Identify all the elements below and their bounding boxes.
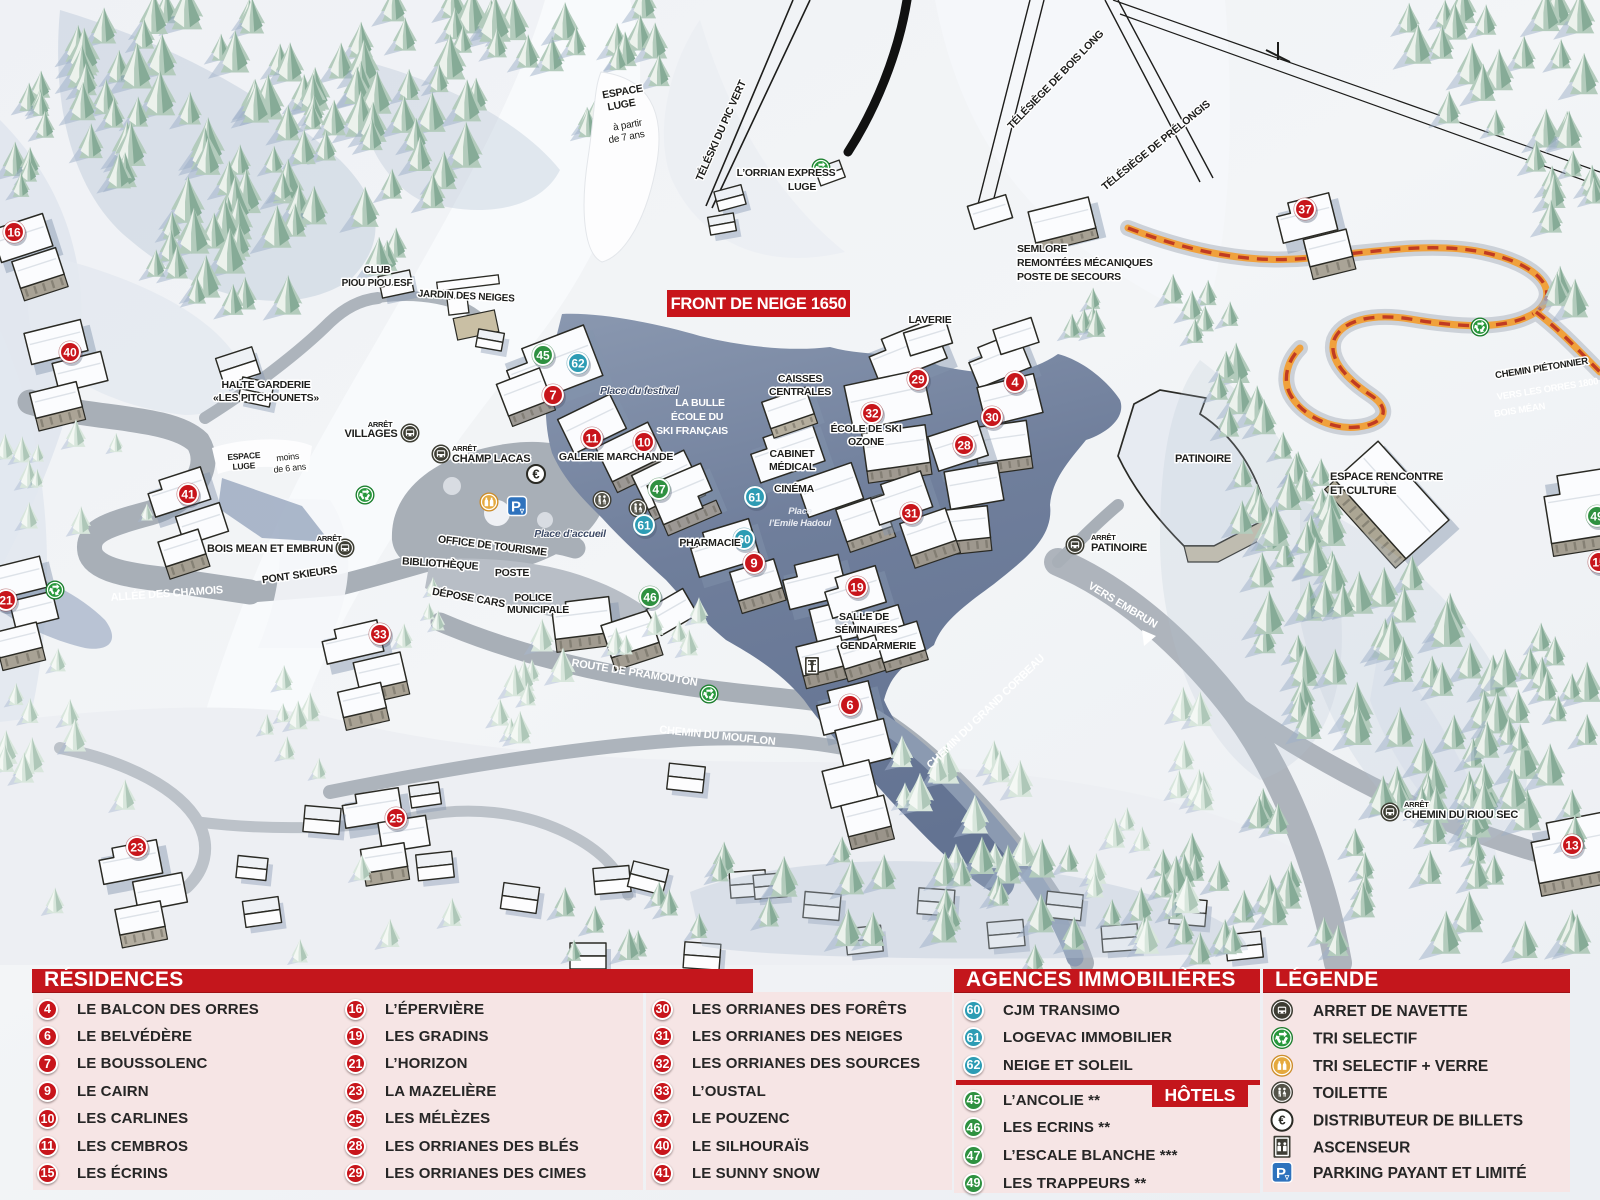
svg-text:CAISSES: CAISSES	[778, 373, 823, 385]
svg-text:VILLAGES: VILLAGES	[344, 428, 397, 440]
svg-text:40: 40	[63, 345, 77, 359]
svg-text:Place d’accueil: Place d’accueil	[534, 528, 607, 540]
svg-text:4: 4	[1011, 374, 1019, 389]
svg-text:MUNICIPALE: MUNICIPALE	[507, 604, 569, 616]
svg-text:REMONTÉES MÉCANIQUES: REMONTÉES MÉCANIQUES	[1017, 256, 1153, 269]
svg-text:LUGE: LUGE	[232, 460, 256, 472]
svg-text:41: 41	[181, 487, 195, 501]
svg-text:Place: Place	[788, 506, 813, 517]
svg-text:CABINET: CABINET	[770, 448, 816, 460]
svg-text:P: P	[511, 499, 521, 516]
svg-text:LUGE: LUGE	[788, 181, 816, 193]
svg-text:PIOU PIOU ESF: PIOU PIOU ESF	[342, 278, 413, 289]
svg-text:62: 62	[571, 356, 585, 370]
svg-text:10: 10	[637, 435, 651, 449]
svg-text:€: €	[532, 467, 539, 482]
svg-text:CHAMP LACAS: CHAMP LACAS	[452, 453, 530, 465]
svg-text:11: 11	[586, 431, 599, 445]
svg-text:32: 32	[865, 406, 879, 420]
svg-text:19: 19	[850, 580, 864, 594]
svg-text:LAVERIE: LAVERIE	[909, 314, 952, 326]
svg-text:ÉCOLE DU: ÉCOLE DU	[671, 410, 723, 423]
svg-text:SEMLORE: SEMLORE	[1017, 243, 1067, 255]
svg-text:SKI FRANÇAIS: SKI FRANÇAIS	[656, 425, 728, 437]
svg-text:31: 31	[904, 506, 918, 520]
svg-text:61: 61	[637, 518, 651, 532]
svg-text:16: 16	[7, 225, 21, 239]
svg-text:BOIS MEAN ET EMBRUN: BOIS MEAN ET EMBRUN	[207, 543, 333, 555]
svg-text:CENTRALES: CENTRALES	[769, 386, 831, 398]
svg-text:30: 30	[985, 410, 999, 424]
svg-text:«LES PITCHOUNETS»: «LES PITCHOUNETS»	[213, 392, 319, 404]
svg-text:l’Emile Hadoul: l’Emile Hadoul	[769, 518, 832, 529]
svg-text:47: 47	[652, 482, 666, 496]
svg-text:21: 21	[0, 593, 13, 607]
svg-text:29: 29	[911, 372, 925, 386]
svg-text:GENDARMERIE: GENDARMERIE	[840, 640, 916, 652]
svg-text:FRONT DE NEIGE 1650: FRONT DE NEIGE 1650	[671, 295, 847, 313]
svg-text:6: 6	[846, 697, 853, 712]
svg-text:49: 49	[1590, 509, 1600, 523]
svg-text:25: 25	[389, 811, 403, 825]
svg-text:SALLE DE: SALLE DE	[839, 611, 889, 623]
svg-text:POSTE DE SECOURS: POSTE DE SECOURS	[1017, 271, 1121, 283]
svg-text:13: 13	[1565, 838, 1579, 852]
svg-text:MÉDICAL: MÉDICAL	[769, 460, 816, 473]
svg-text:9: 9	[750, 555, 757, 570]
svg-text:ARRÊT: ARRÊT	[317, 534, 342, 543]
svg-text:CHEMIN DU RIOU SEC: CHEMIN DU RIOU SEC	[1404, 809, 1518, 821]
svg-text:7: 7	[549, 387, 556, 402]
svg-text:CLUB: CLUB	[364, 265, 391, 276]
svg-text:OZONE: OZONE	[848, 436, 884, 448]
svg-text:PATINOIRE: PATINOIRE	[1175, 453, 1231, 465]
svg-text:ET CULTURE: ET CULTURE	[1330, 485, 1396, 497]
svg-text:SÉMINAIRES: SÉMINAIRES	[835, 623, 898, 636]
svg-text:POSTE: POSTE	[495, 567, 530, 579]
svg-text:28: 28	[957, 438, 971, 452]
svg-text:15: 15	[1592, 555, 1600, 569]
svg-text:ESPACE RENCONTRE: ESPACE RENCONTRE	[1330, 471, 1443, 483]
svg-text:PHARMACIE: PHARMACIE	[679, 537, 741, 549]
svg-text:HALTE GARDERIE: HALTE GARDERIE	[221, 379, 310, 391]
svg-text:23: 23	[130, 840, 144, 854]
svg-text:33: 33	[373, 627, 387, 641]
svg-text:PATINOIRE: PATINOIRE	[1091, 542, 1147, 554]
svg-text:ÉCOLE DE SKI: ÉCOLE DE SKI	[830, 422, 901, 435]
svg-text:ARRÊT: ARRÊT	[1404, 800, 1429, 809]
svg-text:46: 46	[643, 590, 657, 604]
svg-text:45: 45	[536, 348, 550, 362]
svg-text:37: 37	[1298, 202, 1312, 216]
svg-text:ARRÊT: ARRÊT	[1091, 533, 1116, 542]
svg-text:ARRÊT: ARRÊT	[452, 444, 477, 453]
svg-text:CINÉMA: CINÉMA	[774, 482, 815, 495]
svg-text:LA BULLE: LA BULLE	[675, 397, 725, 409]
svg-text:POLICE: POLICE	[514, 592, 552, 604]
svg-text:L’ORRIAN EXPRESS: L’ORRIAN EXPRESS	[737, 167, 836, 179]
svg-text:61: 61	[748, 490, 762, 504]
svg-text:Place du festival: Place du festival	[600, 385, 679, 397]
svg-text:GALERIE MARCHANDE: GALERIE MARCHANDE	[559, 451, 673, 463]
